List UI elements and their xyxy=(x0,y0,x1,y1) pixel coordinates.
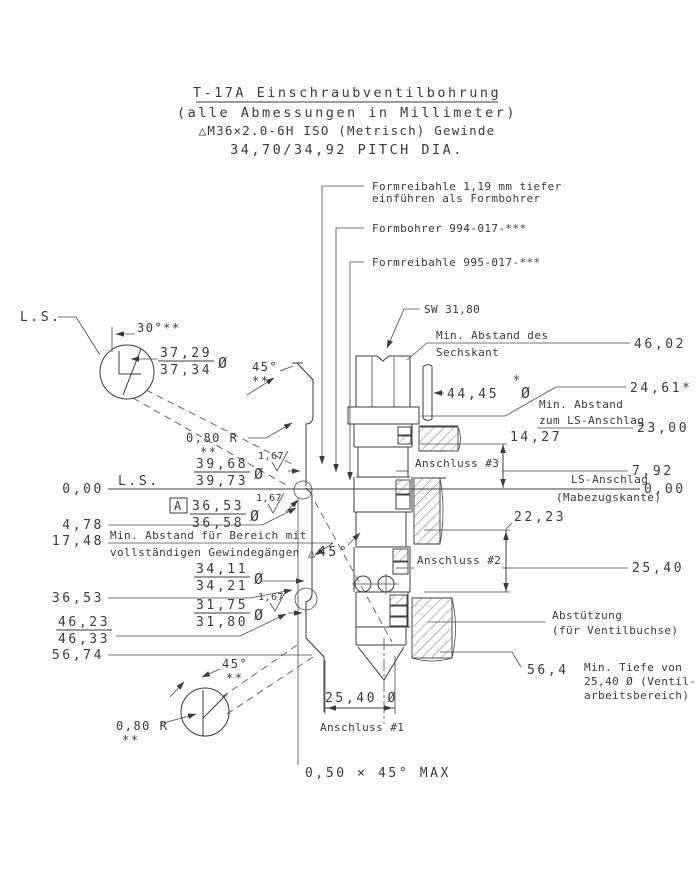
ls-clear-note-1: Min. Abstand xyxy=(539,398,623,411)
support-note-1: Abstützung xyxy=(552,609,622,622)
dim-37-34: 37,34 xyxy=(160,363,212,378)
port2-bore-edges xyxy=(412,544,452,598)
port1-label: Anschluss #1 xyxy=(320,721,404,734)
angle-30-label: 30°** xyxy=(137,321,181,335)
thread-note-2: vollständigen Gewindegängen xyxy=(110,546,300,559)
depth-note-2: 25,40 Ø (Ventil- xyxy=(584,675,696,688)
dim-37-dia: Ø xyxy=(218,354,227,372)
flange xyxy=(348,407,419,424)
dim-34-21: 34,21 xyxy=(196,579,248,594)
seal-gland-4 xyxy=(390,617,407,626)
leader-hex-size xyxy=(387,309,420,348)
depth-note-1: Min. Tiefe von xyxy=(584,661,682,674)
dim-34-dia: Ø xyxy=(254,570,263,588)
title-block: T-17A Einschraubventilbohrung (alle Abme… xyxy=(177,85,517,158)
body-walls xyxy=(354,424,412,645)
depth-46-33: 46,33 xyxy=(58,632,110,647)
working-dia-value: 25,40 Ø xyxy=(325,691,398,706)
ls-label-top: L.S. xyxy=(20,310,62,325)
datum-letter: A xyxy=(174,499,183,513)
ls-leader xyxy=(58,317,100,355)
title-line4: 34,70/34,92 PITCH DIA. xyxy=(230,142,464,158)
nose-taper xyxy=(358,647,404,680)
hex-facets xyxy=(372,357,394,407)
dim-36-dia: Ø xyxy=(250,507,259,525)
dim-22-23: 22,23 xyxy=(514,510,566,525)
angle-45-bottom-label: 45° xyxy=(222,657,248,671)
dim-34-11: 34,11 xyxy=(196,562,248,577)
depth-17-48: 17,48 xyxy=(52,534,104,549)
left-dimensions: 37,29 37,34 Ø 45° ** 0,80 R ** 1,67 39,6… xyxy=(52,346,360,663)
chamfer-detail-circle xyxy=(181,688,229,736)
drawing-canvas: T-17A Einschraubventilbohrung (alle Abme… xyxy=(0,0,700,869)
depth-56-74: 56,74 xyxy=(52,648,104,663)
port2-label: Anschluss #2 xyxy=(417,554,501,567)
callout-reamer-depth-2: einführen als Formbohrer xyxy=(372,192,541,205)
seal-ring xyxy=(398,427,411,435)
thread-detail-geometry xyxy=(119,349,141,395)
dim-39-73: 39,73 xyxy=(196,474,248,489)
oring-gland xyxy=(396,495,410,509)
depth-4-78: 4,78 xyxy=(62,518,104,533)
seal-gland-3 xyxy=(390,606,407,616)
depth-0-00: 0,00 xyxy=(62,482,104,497)
ls-clear-value: 23,00 xyxy=(637,421,689,436)
rough-36-value: 1,67 xyxy=(256,493,282,504)
dim-25-40: 25,40 xyxy=(632,561,684,576)
washer-edge xyxy=(423,365,432,421)
technical-drawing-page: T-17A Einschraubventilbohrung (alle Abme… xyxy=(0,0,700,869)
title-line2: (alle Abmessungen in Millimeter) xyxy=(177,105,517,121)
chamfer-detail-geometry xyxy=(203,690,227,736)
thread-detail-circle xyxy=(100,345,154,399)
hex-size-label: SW 31,80 xyxy=(424,303,480,316)
detail-top-left: L.S. 30°** xyxy=(20,310,296,486)
hex-head-crown xyxy=(377,356,389,361)
port3-label: Anschluss #3 xyxy=(415,457,499,470)
bore-profile xyxy=(292,363,392,712)
hex-clear-value: 46,02 xyxy=(634,337,686,352)
ls-label-mid: L.S. xyxy=(118,474,160,489)
ls-clear-note-2: zum LS-Anschlag xyxy=(539,414,644,427)
angle-45-bottom-stars: ** xyxy=(226,671,243,685)
dim-36-53: 36,53 xyxy=(192,499,244,514)
angle-45-top-flag xyxy=(280,366,293,371)
dim-39-68: 39,68 xyxy=(196,457,248,472)
angle-45-bottom-arrow2 xyxy=(170,682,184,697)
support-note-2: (für Ventilbuchse) xyxy=(552,624,678,637)
rough-39-value: 1,67 xyxy=(258,451,284,462)
title-line3: △M36×2.0-6H ISO (Metrisch) Gewinde xyxy=(199,123,496,138)
depth-46-23: 46,23 xyxy=(58,615,110,630)
oring-gland-hatched xyxy=(396,480,410,494)
housing-break-2 xyxy=(440,478,443,544)
hex-head-outline xyxy=(356,356,410,407)
dim-24-61: 24,61* xyxy=(630,381,693,396)
dim-14-27: 14,27 xyxy=(510,430,562,445)
angle-45-top-label: 45° xyxy=(252,360,278,374)
housing-hatch-2 xyxy=(414,478,440,544)
thread-note-triangle: △ xyxy=(308,546,317,560)
callout-form-reamer: Formreibahle 995-017-*** xyxy=(372,256,541,269)
dim-31-dia: Ø xyxy=(254,606,263,624)
seal-ring-hatched xyxy=(398,436,411,444)
depth-note-3: arbeitsbereich) xyxy=(584,689,689,702)
hex-clear-note-1: Min. Abstand des xyxy=(436,329,548,342)
angle-45-mid-label: 45° xyxy=(318,545,349,560)
seal-gland-3-hatched xyxy=(390,595,407,605)
washer-dia-symbol: Ø xyxy=(521,384,530,402)
dim-37-29: 37,29 xyxy=(160,346,212,361)
dim-31-80: 31,80 xyxy=(196,615,248,630)
housing-hatch-3 xyxy=(412,598,452,658)
dim-39-dia: Ø xyxy=(254,465,263,483)
radius-bottom-label: 0,80 R xyxy=(116,719,168,733)
dim-31-75: 31,75 xyxy=(196,598,248,613)
ls-edge-note-1: LS-Anschlag xyxy=(571,473,648,486)
hex-clear-note-2: Sechskant xyxy=(436,346,499,359)
ls-edge-value: 0,00 xyxy=(644,482,686,497)
thread-note-1: Min. Abstand für Bereich mit xyxy=(110,529,307,542)
radius-bottom-stars: ** xyxy=(122,733,139,747)
detail-bottom-left: 45° ** 0,80 R ** xyxy=(116,643,313,747)
radius-top-arrow xyxy=(248,423,292,438)
washer-dia-value: 44,45 xyxy=(447,387,499,402)
chamfer-max-label: 0,50 × 45° MAX xyxy=(305,766,451,781)
angle-45-mid-arrow xyxy=(348,533,360,545)
angle-45-bottom-arrow1 xyxy=(202,669,220,677)
depth-36-53: 36,53 xyxy=(52,591,104,606)
housing-hatch-1 xyxy=(419,427,458,451)
detail-balloon-thread-runout xyxy=(294,481,312,499)
seal-gland-2-hatched xyxy=(393,549,408,561)
title-line1: T-17A Einschraubventilbohrung xyxy=(193,85,501,101)
callout-form-drill: Formbohrer 994-017-*** xyxy=(372,222,527,235)
depth-value: 56,4 xyxy=(527,663,569,678)
radius-top-label: 0,80 R xyxy=(186,431,238,445)
